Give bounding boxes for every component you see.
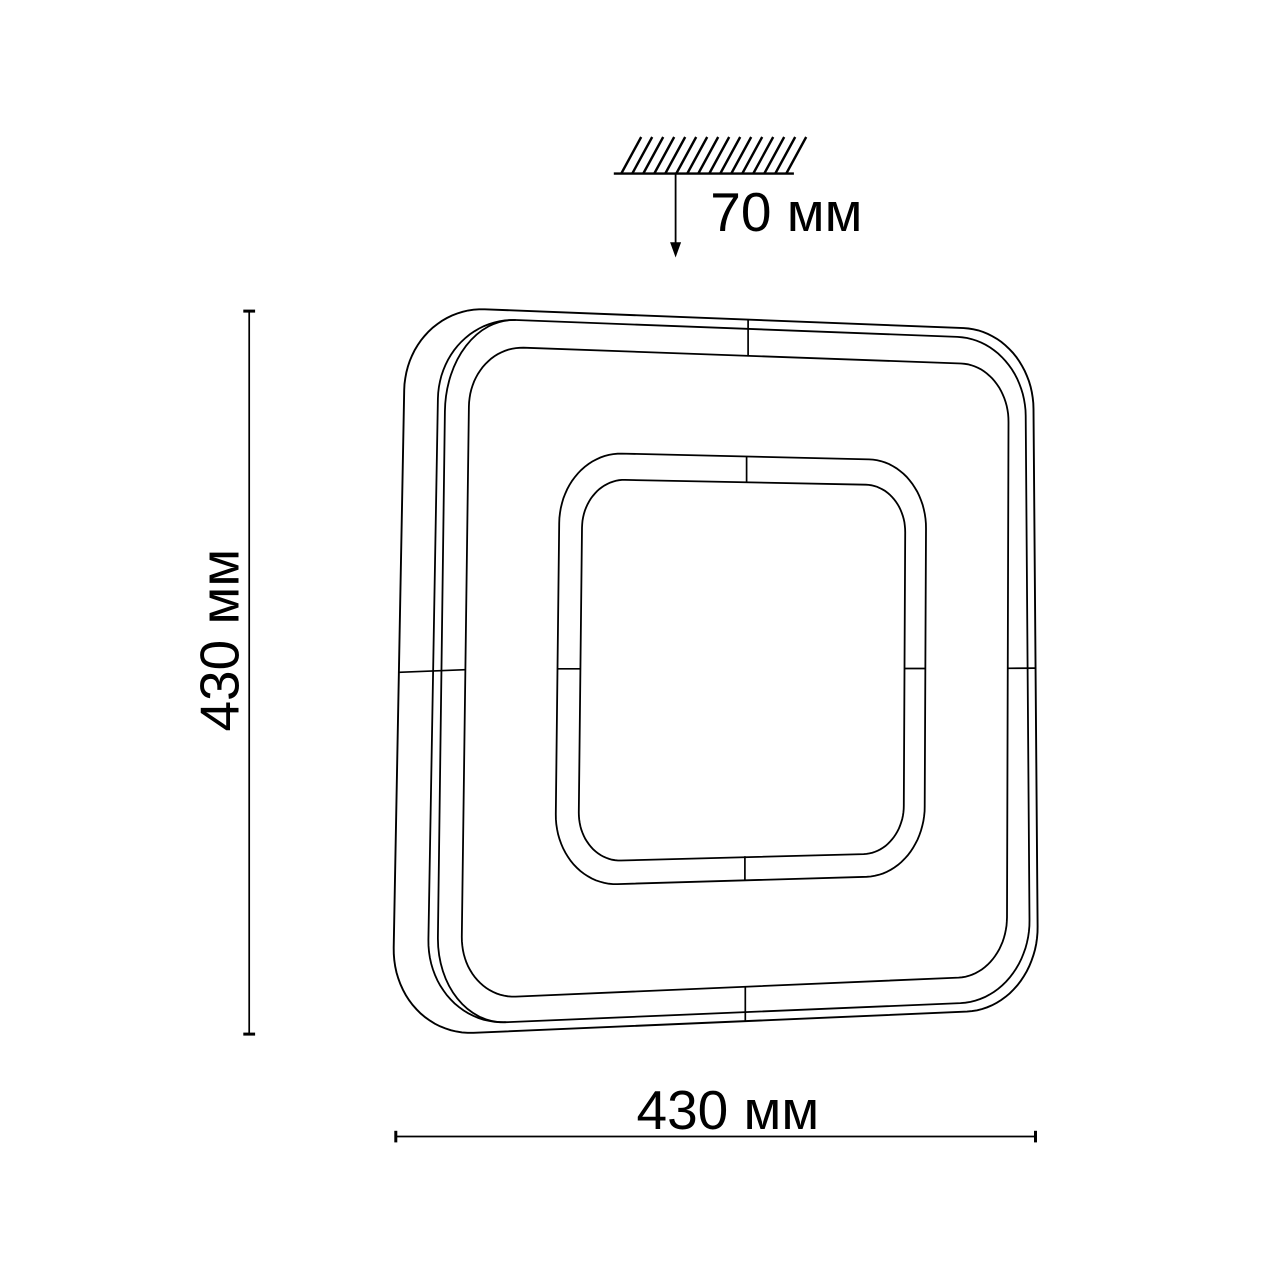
svg-text:430 мм: 430 мм xyxy=(188,549,250,732)
svg-text:430 мм: 430 мм xyxy=(637,1079,820,1141)
svg-text:70 мм: 70 мм xyxy=(710,181,862,243)
